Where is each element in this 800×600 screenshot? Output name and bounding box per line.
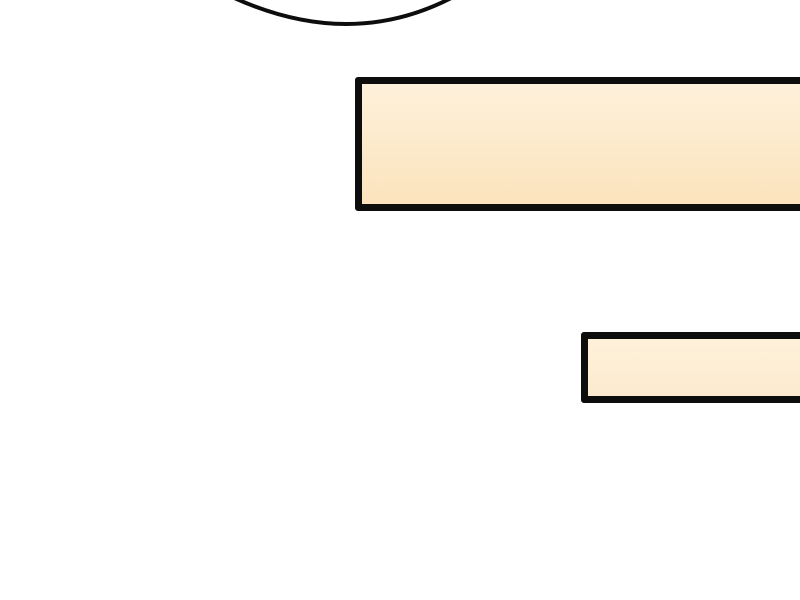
caption-box-small bbox=[581, 332, 800, 403]
comic-panel bbox=[0, 0, 800, 600]
caption-box-large bbox=[355, 77, 800, 211]
speech-balloon-bottom-arc bbox=[0, 0, 800, 70]
speech-balloon-outline-path bbox=[230, 0, 455, 24]
